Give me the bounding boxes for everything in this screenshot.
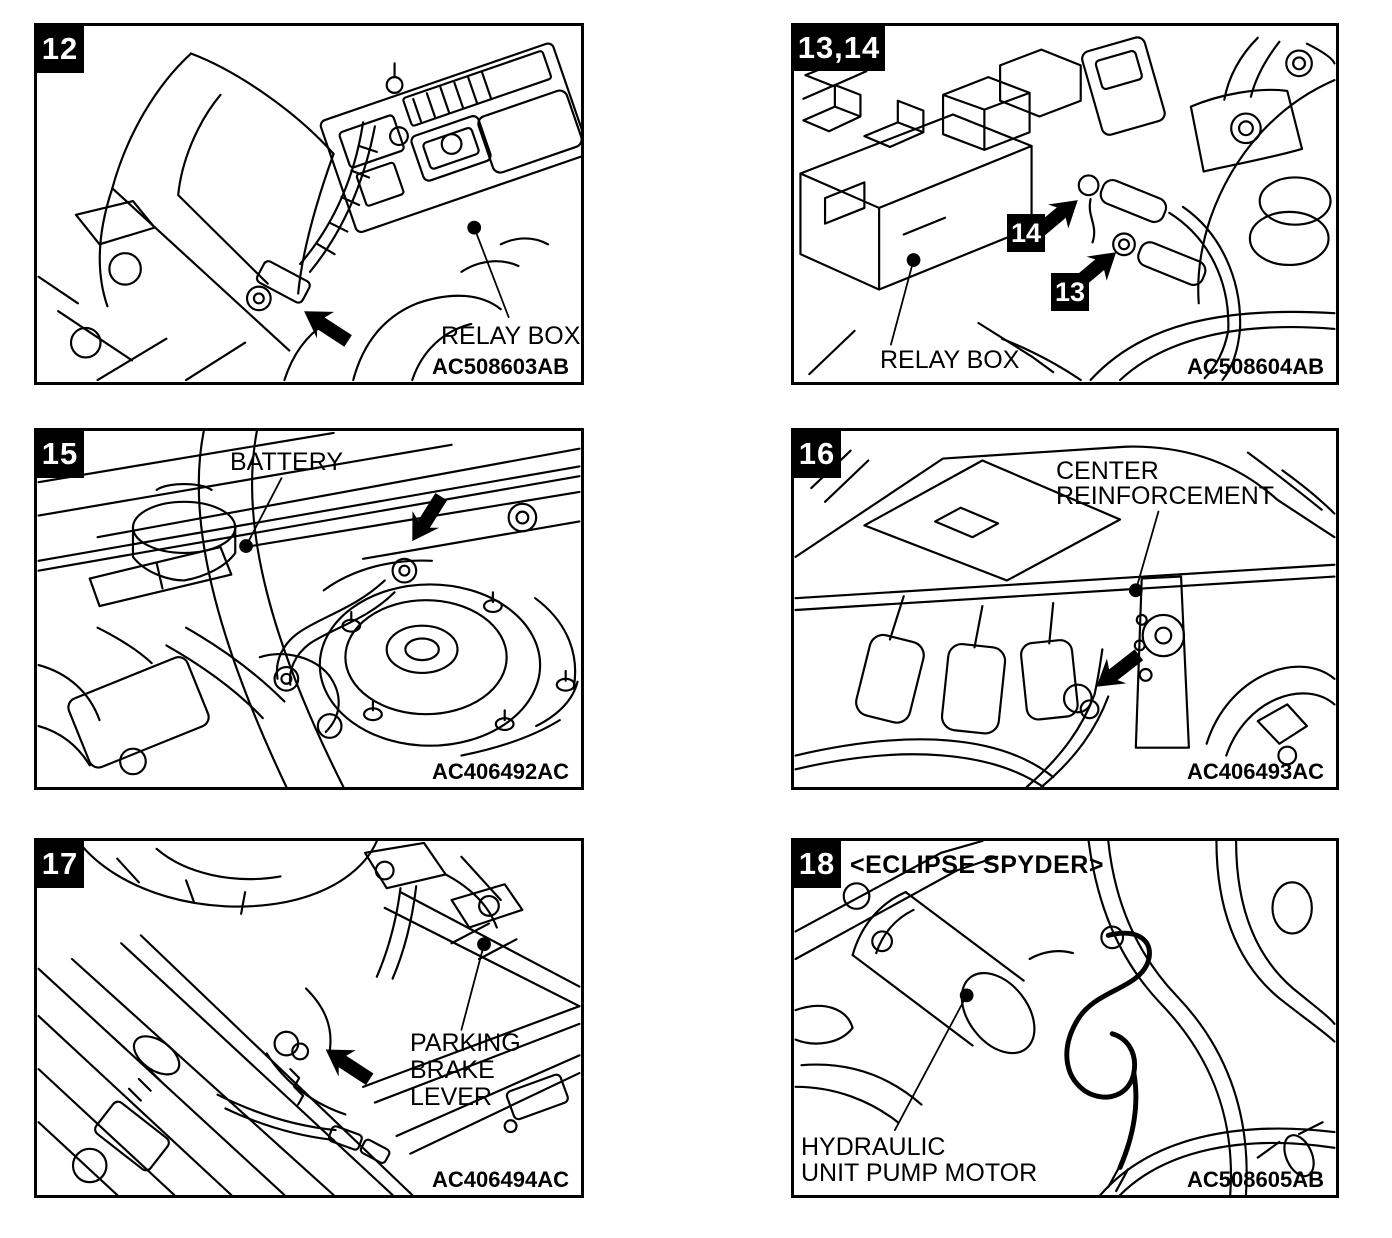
figure-panel-17: 17 PARKING BRAKE LEVER AC406494AC	[34, 838, 584, 1198]
step-number-badge-17: 17	[36, 840, 84, 888]
step-number-badge-16: 16	[793, 430, 841, 478]
callout-label-battery: BATTERY	[230, 449, 343, 475]
pump-cable-art	[1067, 927, 1150, 1192]
pedals-art	[853, 596, 1079, 735]
line-art-figure-15	[37, 431, 581, 787]
step-number-badge-15: 15	[36, 430, 84, 478]
service-manual-page: { "page": { "paper_color": "#ffffff", "i…	[0, 0, 1392, 1238]
hydraulic-unit-art	[853, 892, 1073, 1067]
fuse-box-art	[800, 36, 1166, 290]
figure-code-18: AC508605AB	[1187, 1167, 1324, 1193]
callout-label-center-reinforcement: CENTER REINFORCEMENT	[1056, 459, 1274, 509]
body-frame-art	[1191, 38, 1335, 304]
line-art-figure-13-14	[794, 26, 1336, 382]
step-number-badge-18: 18	[793, 840, 841, 888]
variant-note-eclipse-spyder: <ECLIPSE SPYDER>	[850, 851, 1104, 880]
figure-panel-18: 18 <ECLIPSE SPYDER> HYDRAULIC UNIT PUMP …	[791, 838, 1339, 1198]
step-number-badge-12: 12	[36, 25, 84, 73]
engine-art	[39, 628, 285, 775]
step-number-badge-13-14: 13,14	[793, 25, 885, 71]
center-reinforcement-art	[1135, 577, 1189, 748]
figure-code-17: AC406494AC	[432, 1167, 569, 1193]
hoses-art	[1089, 841, 1335, 1195]
callout-label-parking-brake-lever: PARKING BRAKE LEVER	[410, 1030, 521, 1111]
step-number-badge-13: 13	[1051, 273, 1089, 311]
figure-panel-15: 15 BATTERY AC406492AC	[34, 428, 584, 790]
leader-line	[891, 260, 914, 345]
rails-art	[363, 892, 579, 1154]
callout-label-relay-box: RELAY BOX	[880, 347, 1019, 373]
figure-code-13-14: AC508604AB	[1187, 354, 1324, 380]
figure-panel-16: 16 CENTER REINFORCEMENT AC406493AC	[791, 428, 1339, 790]
line-art-figure-17	[37, 841, 581, 1195]
leader-line	[461, 944, 484, 1030]
steering-wheel-art	[78, 841, 377, 914]
figure-panel-12: 12 RELAY BOX AC508603AB	[34, 23, 584, 385]
figure-code-15: AC406492AC	[432, 759, 569, 785]
figure-code-16: AC406493AC	[1187, 759, 1324, 785]
callout-label-hydraulic-unit-pump-motor: HYDRAULIC UNIT PUMP MOTOR	[801, 1134, 1037, 1186]
strut-tower-art	[320, 561, 578, 756]
callout-label-relay-box: RELAY BOX	[441, 323, 580, 349]
pointer-arrow-icon	[296, 298, 358, 353]
frame-art	[796, 841, 1312, 1122]
engine-cover-art	[39, 54, 334, 380]
figure-panel-13-14: 13,14 14 13 RELAY BOX AC508604AB	[791, 23, 1339, 385]
step-number-badge-14: 14	[1007, 214, 1045, 252]
leader-line	[895, 995, 967, 1130]
figure-code-12: AC508603AB	[432, 354, 569, 380]
